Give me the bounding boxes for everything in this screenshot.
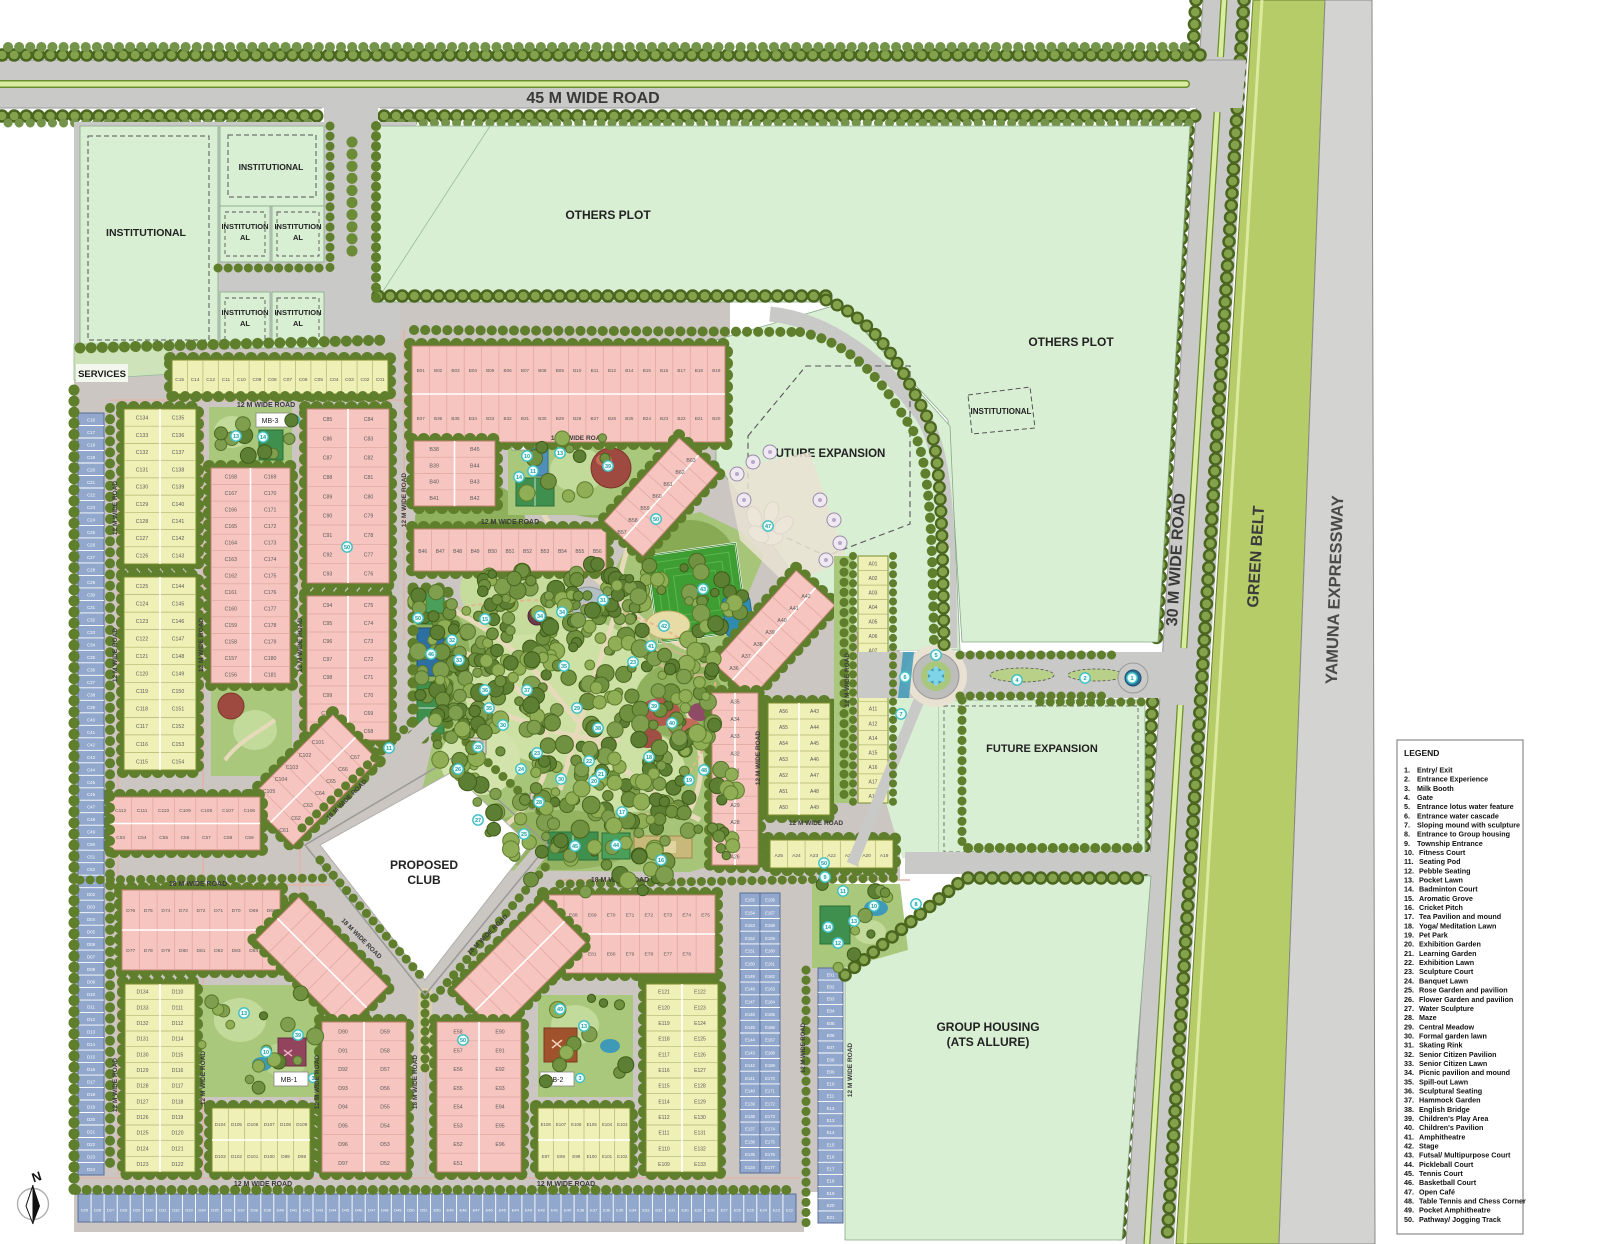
svg-text:C125: C125 [136,584,149,590]
svg-text:C53: C53 [116,835,125,841]
svg-text:C57: C57 [202,835,211,841]
svg-text:20: 20 [591,779,597,785]
svg-text:D27: D27 [107,1207,115,1212]
svg-text:E02: E02 [827,984,835,989]
svg-text:50: 50 [344,545,350,551]
svg-text:8.: 8. [1404,830,1410,839]
svg-text:35: 35 [561,664,567,670]
svg-text:E46: E46 [486,1207,494,1212]
svg-text:Tennis Court: Tennis Court [1419,1169,1463,1178]
svg-text:E36: E36 [603,1207,611,1212]
svg-text:D39: D39 [264,1207,272,1212]
svg-text:Entrance Experience: Entrance Experience [1417,775,1488,784]
svg-text:B07: B07 [521,368,530,373]
svg-text:49: 49 [557,1007,563,1013]
svg-text:B23: B23 [660,416,669,421]
svg-text:C94: C94 [323,603,333,609]
svg-text:26.: 26. [1404,995,1414,1004]
svg-text:D74: D74 [161,908,170,914]
svg-text:B03: B03 [451,368,460,373]
svg-text:D90: D90 [338,1030,348,1036]
svg-text:D02: D02 [87,892,96,897]
svg-text:C108: C108 [201,808,213,814]
svg-text:C110: C110 [158,808,169,814]
svg-text:D76: D76 [126,908,135,914]
svg-text:12 M WIDE ROAD: 12 M WIDE ROAD [537,1181,595,1188]
svg-text:C03: C03 [345,377,354,383]
svg-text:C71: C71 [364,675,374,681]
svg-text:A19: A19 [880,853,889,859]
svg-text:D46: D46 [355,1207,363,1212]
svg-text:12 M WIDE ROAD: 12 M WIDE ROAD [847,1043,854,1097]
svg-text:Seating Pod: Seating Pod [1419,857,1461,866]
svg-text:D114: D114 [172,1037,184,1043]
svg-text:9.: 9. [1404,839,1410,848]
svg-text:E94: E94 [495,1105,504,1111]
svg-text:(ATS ALLURE): (ATS ALLURE) [947,1035,1030,1049]
svg-text:C154: C154 [172,759,185,765]
svg-text:E10: E10 [827,1082,835,1087]
svg-text:C58: C58 [223,835,232,841]
svg-text:C120: C120 [136,672,149,678]
svg-text:A02: A02 [869,576,878,582]
svg-text:E33: E33 [642,1207,650,1212]
svg-text:C172: C172 [264,524,277,530]
svg-text:E170: E170 [765,1076,775,1081]
svg-text:A22: A22 [827,853,836,859]
svg-text:B02: B02 [434,368,443,373]
svg-text:E173: E173 [765,1114,775,1119]
svg-text:12 M WIDE ROAD: 12 M WIDE ROAD [844,653,851,707]
svg-text:D38: D38 [251,1207,259,1212]
svg-text:E128: E128 [694,1084,706,1090]
svg-text:D57: D57 [380,1067,390,1073]
svg-text:E96: E96 [495,1142,504,1148]
svg-text:Table Tennis and Chess Corner: Table Tennis and Chess Corner [1419,1197,1526,1206]
svg-text:Pickleball Court: Pickleball Court [1419,1160,1474,1169]
svg-text:E97: E97 [542,1154,550,1159]
svg-text:Amphitheatre: Amphitheatre [1419,1132,1465,1141]
svg-text:E121: E121 [658,990,670,996]
svg-text:B21: B21 [695,416,704,421]
svg-text:E101: E101 [602,1154,613,1159]
svg-text:D48: D48 [381,1207,389,1212]
svg-text:Hammock Garden: Hammock Garden [1419,1096,1481,1105]
svg-text:B62: B62 [675,470,684,476]
svg-text:Exhibition Lawn: Exhibition Lawn [1419,958,1474,967]
svg-text:C51: C51 [87,855,96,860]
svg-text:D42: D42 [303,1207,311,1212]
svg-text:C05: C05 [314,377,323,383]
svg-text:C50: C50 [87,842,96,847]
svg-text:B29: B29 [556,416,565,421]
svg-text:E80: E80 [607,952,616,958]
svg-text:D116: D116 [172,1068,184,1074]
svg-text:26: 26 [455,767,461,773]
svg-text:E49: E49 [447,1207,455,1212]
svg-text:B05: B05 [486,368,495,373]
svg-text:E105: E105 [587,1122,598,1127]
svg-text:C14: C14 [191,377,200,383]
svg-text:C21: C21 [87,480,96,485]
svg-text:10.: 10. [1404,848,1414,857]
svg-text:C167: C167 [225,491,238,497]
svg-text:C07: C07 [283,377,292,383]
svg-text:E30: E30 [681,1207,689,1212]
svg-text:C81: C81 [364,475,374,481]
svg-text:C40: C40 [87,717,96,722]
svg-text:E137: E137 [745,1127,755,1132]
svg-text:E124: E124 [694,1021,706,1027]
svg-text:E43: E43 [525,1207,533,1212]
svg-text:E75: E75 [701,913,710,919]
svg-text:9: 9 [823,875,826,881]
svg-text:18 M WIDE ROAD: 18 M WIDE ROAD [412,1055,419,1109]
svg-text:E41: E41 [551,1207,559,1212]
svg-text:C67: C67 [350,755,360,761]
svg-text:D91: D91 [338,1048,348,1054]
svg-text:D56: D56 [380,1086,390,1092]
svg-text:Milk Booth: Milk Booth [1417,784,1454,793]
svg-text:Pocket Lawn: Pocket Lawn [1419,876,1463,885]
svg-text:E171: E171 [765,1089,775,1094]
svg-text:C178: C178 [264,623,277,629]
svg-text:D32: D32 [172,1207,180,1212]
svg-text:C122: C122 [136,637,149,643]
svg-text:B57: B57 [617,530,626,536]
svg-text:17.: 17. [1404,912,1414,921]
svg-text:E57: E57 [453,1048,462,1054]
svg-text:D15: D15 [87,1055,96,1060]
svg-text:OTHERS PLOT: OTHERS PLOT [1028,335,1114,349]
svg-text:12 M WIDE ROAD: 12 M WIDE ROAD [314,1055,321,1109]
svg-text:B42: B42 [470,496,480,502]
svg-text:E03: E03 [827,997,835,1002]
svg-text:50.: 50. [1404,1215,1414,1224]
svg-text:B41: B41 [429,496,439,502]
svg-text:12 M WIDE ROAD: 12 M WIDE ROAD [401,473,408,527]
svg-text:C163: C163 [225,557,238,563]
svg-text:Senior Citizen Pavilion: Senior Citizen Pavilion [1419,1050,1496,1059]
svg-text:27.: 27. [1404,1004,1414,1013]
svg-text:Rose Garden and pavilion: Rose Garden and pavilion [1419,986,1508,995]
svg-text:E107: E107 [556,1122,567,1127]
svg-text:A20: A20 [862,853,871,859]
svg-text:AL: AL [293,319,303,328]
svg-text:D40: D40 [277,1207,285,1212]
svg-text:23.: 23. [1404,967,1414,976]
svg-text:E73: E73 [663,913,672,919]
svg-text:B38: B38 [429,447,439,453]
svg-text:12 M WIDE ROAD: 12 M WIDE ROAD [112,1058,119,1112]
svg-text:E106: E106 [571,1122,582,1127]
svg-text:E149: E149 [745,974,755,979]
svg-text:B19: B19 [712,368,721,373]
svg-text:Banquet Lawn: Banquet Lawn [1419,976,1468,985]
svg-text:E112: E112 [658,1115,670,1121]
svg-text:11: 11 [530,469,536,475]
svg-text:E77: E77 [663,952,672,958]
svg-text:C150: C150 [172,689,185,695]
svg-text:E161: E161 [765,961,775,966]
svg-text:C08: C08 [268,377,277,383]
svg-text:C23: C23 [87,505,96,510]
svg-text:C165: C165 [225,524,238,530]
svg-text:B06: B06 [504,368,513,373]
svg-text:C179: C179 [264,640,277,646]
svg-text:MB-1: MB-1 [281,1077,298,1084]
svg-text:B63: B63 [686,458,695,464]
svg-text:E119: E119 [658,1021,670,1027]
svg-text:B43: B43 [470,480,480,486]
svg-text:B15: B15 [643,368,652,373]
svg-text:E136: E136 [745,1140,755,1145]
svg-text:A15: A15 [869,750,878,756]
svg-text:Learning Garden: Learning Garden [1419,949,1477,958]
svg-text:D28: D28 [120,1207,128,1212]
svg-text:14: 14 [825,925,832,931]
svg-text:D55: D55 [380,1105,390,1111]
svg-text:13: 13 [241,1011,247,1017]
svg-text:C145: C145 [172,601,185,607]
svg-text:18.: 18. [1404,921,1414,930]
svg-text:C55: C55 [159,835,168,841]
svg-text:32: 32 [449,638,455,644]
svg-text:C101: C101 [312,740,325,746]
svg-text:C83: C83 [364,436,374,442]
svg-text:INSTITUTION: INSTITUTION [274,308,321,317]
svg-text:D79: D79 [161,948,170,954]
svg-text:E142: E142 [745,1063,755,1068]
svg-text:E14: E14 [827,1130,835,1135]
svg-text:C151: C151 [172,707,185,713]
svg-text:D13: D13 [87,1030,96,1035]
svg-text:2: 2 [1083,676,1086,682]
svg-text:10: 10 [524,454,530,460]
svg-text:E93: E93 [495,1086,504,1092]
svg-text:E25: E25 [747,1207,755,1212]
svg-text:31.: 31. [1404,1041,1414,1050]
svg-text:30: 30 [558,777,564,783]
svg-text:13: 13 [581,1024,587,1030]
svg-text:C170: C170 [264,491,277,497]
svg-text:18 M WIDE ROAD: 18 M WIDE ROAD [169,881,227,888]
svg-text:1.: 1. [1404,766,1410,775]
svg-text:C44: C44 [87,767,96,772]
svg-text:E21: E21 [827,1215,835,1220]
svg-text:16.: 16. [1404,903,1414,912]
svg-text:36: 36 [482,688,488,694]
svg-text:C121: C121 [136,654,149,660]
svg-text:50: 50 [653,517,659,523]
svg-text:C169: C169 [264,474,277,480]
svg-text:28: 28 [475,745,481,751]
svg-text:D75: D75 [144,908,153,914]
svg-text:C09: C09 [252,377,261,383]
svg-text:A36: A36 [729,666,738,672]
svg-text:13: 13 [233,434,239,440]
svg-text:1: 1 [1130,676,1133,682]
svg-text:E78: E78 [645,952,654,958]
svg-text:A24: A24 [792,853,801,859]
svg-text:D130: D130 [137,1052,149,1058]
svg-text:11.: 11. [1404,857,1414,866]
svg-text:D07: D07 [87,955,96,960]
svg-text:C115: C115 [136,759,148,765]
svg-text:C129: C129 [136,502,149,508]
svg-text:E163: E163 [765,987,775,992]
svg-text:16: 16 [658,858,664,864]
svg-text:C175: C175 [264,574,277,580]
svg-text:A12: A12 [869,721,878,727]
svg-text:C62: C62 [291,816,301,822]
svg-text:12 M WIDE ROAD: 12 M WIDE ROAD [297,618,304,672]
svg-text:B10: B10 [573,368,582,373]
svg-text:D33: D33 [185,1207,193,1212]
svg-text:17: 17 [619,810,625,816]
svg-text:D21: D21 [87,1130,96,1135]
svg-text:Flower Garden and pavilion: Flower Garden and pavilion [1419,995,1513,1004]
svg-text:A01: A01 [869,561,878,567]
svg-text:14: 14 [260,435,267,441]
svg-text:28: 28 [536,800,542,806]
svg-text:A53: A53 [779,757,788,763]
svg-text:D47: D47 [368,1207,376,1212]
svg-text:D69: D69 [249,908,258,914]
svg-text:D14: D14 [87,1042,96,1047]
svg-text:A04: A04 [869,605,878,611]
svg-text:D99: D99 [281,1154,290,1159]
svg-text:39: 39 [295,1033,301,1039]
svg-text:INSTITUTION: INSTITUTION [221,308,268,317]
svg-text:C123: C123 [136,619,149,625]
svg-text:B31: B31 [521,416,530,421]
svg-text:C99: C99 [323,693,333,699]
svg-text:E20: E20 [827,1203,835,1208]
svg-text:E120: E120 [658,1005,670,1011]
svg-text:42.: 42. [1404,1142,1414,1151]
svg-text:Entrance water cascade: Entrance water cascade [1417,811,1499,820]
svg-text:Badminton Court: Badminton Court [1419,885,1478,894]
svg-text:E122: E122 [694,990,706,996]
svg-text:47: 47 [765,524,771,530]
svg-text:Futsal/ Multipurpose Court: Futsal/ Multipurpose Court [1419,1151,1511,1160]
svg-text:E69: E69 [588,913,597,919]
svg-text:D06: D06 [87,942,96,947]
svg-text:B37: B37 [417,416,426,421]
svg-text:C171: C171 [264,507,277,513]
svg-text:C111: C111 [137,808,148,814]
svg-text:A50: A50 [779,805,788,811]
svg-text:E147: E147 [745,1000,755,1005]
svg-text:D108: D108 [280,1122,291,1127]
svg-text:B24: B24 [643,416,652,421]
svg-text:E144: E144 [745,1038,755,1043]
svg-text:C124: C124 [136,601,149,607]
svg-text:C01: C01 [376,377,385,383]
svg-text:E11: E11 [827,1094,835,1099]
svg-text:41.: 41. [1404,1132,1414,1141]
svg-text:C162: C162 [225,574,238,580]
svg-text:D05: D05 [87,930,96,935]
svg-text:C97: C97 [323,657,333,663]
svg-text:11: 11 [840,889,846,895]
svg-text:D81: D81 [197,948,206,954]
svg-text:D22: D22 [87,1142,96,1147]
svg-text:33: 33 [456,658,462,664]
svg-text:E148: E148 [745,987,755,992]
svg-text:C112: C112 [115,808,126,814]
svg-text:Children's Play Area: Children's Play Area [1419,1114,1489,1123]
svg-text:D121: D121 [172,1146,184,1152]
svg-text:E45: E45 [499,1207,507,1212]
svg-text:B30: B30 [538,416,547,421]
svg-text:C119: C119 [136,689,148,695]
svg-text:B20: B20 [712,416,721,421]
svg-text:36.: 36. [1404,1087,1414,1096]
svg-text:D118: D118 [172,1099,184,1105]
svg-text:E91: E91 [495,1048,504,1054]
svg-text:English Bridge: English Bridge [1419,1105,1470,1114]
svg-text:D04: D04 [87,917,96,922]
svg-text:37: 37 [524,688,530,694]
svg-text:44: 44 [613,843,620,849]
svg-text:39: 39 [605,464,611,470]
svg-text:A11: A11 [869,707,878,713]
svg-text:C72: C72 [364,657,374,663]
svg-text:50: 50 [460,1038,466,1044]
svg-text:C148: C148 [172,654,185,660]
svg-text:Water Sculpture: Water Sculpture [1419,1004,1474,1013]
svg-text:FUTURE EXPANSION: FUTURE EXPANSION [986,743,1098,755]
svg-text:C91: C91 [323,533,333,539]
svg-text:A39: A39 [765,630,774,636]
svg-text:D106: D106 [247,1122,258,1127]
svg-text:E28: E28 [708,1207,716,1212]
svg-text:E125: E125 [694,1037,706,1043]
svg-text:C64: C64 [315,791,325,797]
svg-text:D11: D11 [87,1005,95,1010]
svg-text:D100: D100 [264,1154,275,1159]
svg-text:40.: 40. [1404,1123,1414,1132]
svg-text:E26: E26 [734,1207,742,1212]
svg-text:12 M WIDE ROAD: 12 M WIDE ROAD [789,820,843,827]
svg-text:25.: 25. [1404,986,1414,995]
svg-text:D49: D49 [394,1207,402,1212]
svg-text:E48: E48 [460,1207,468,1212]
svg-text:B33: B33 [486,416,495,421]
svg-text:E44: E44 [512,1207,520,1212]
svg-text:D97: D97 [338,1161,348,1167]
svg-text:31: 31 [600,598,606,604]
svg-text:C79: C79 [364,514,374,520]
svg-text:33.: 33. [1404,1059,1414,1068]
svg-text:E165: E165 [765,1012,775,1017]
svg-text:E160: E160 [765,949,775,954]
svg-text:E40: E40 [564,1207,572,1212]
svg-text:C164: C164 [225,540,238,546]
svg-text:D29: D29 [133,1207,141,1212]
svg-text:23: 23 [534,751,540,757]
svg-text:B26: B26 [608,416,617,421]
svg-text:E23: E23 [773,1207,781,1212]
svg-text:C80: C80 [364,494,374,500]
svg-text:E04: E04 [827,1009,835,1014]
svg-text:E24: E24 [760,1207,768,1212]
svg-text:Picnic pavilion and mound: Picnic pavilion and mound [1419,1068,1510,1077]
svg-text:34: 34 [537,614,544,620]
svg-text:C59: C59 [245,835,254,841]
